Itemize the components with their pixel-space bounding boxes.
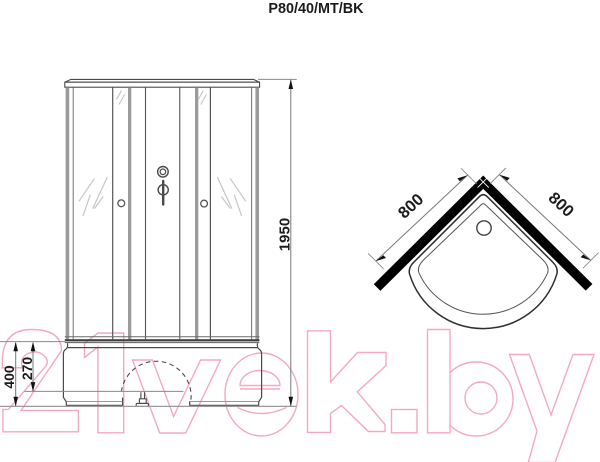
- svg-text:270: 270: [19, 357, 35, 381]
- svg-text:800: 800: [545, 189, 577, 221]
- svg-text:1950: 1950: [276, 218, 293, 251]
- svg-text:400: 400: [1, 365, 17, 389]
- svg-text:P80/40/MT/BK: P80/40/MT/BK: [268, 1, 364, 17]
